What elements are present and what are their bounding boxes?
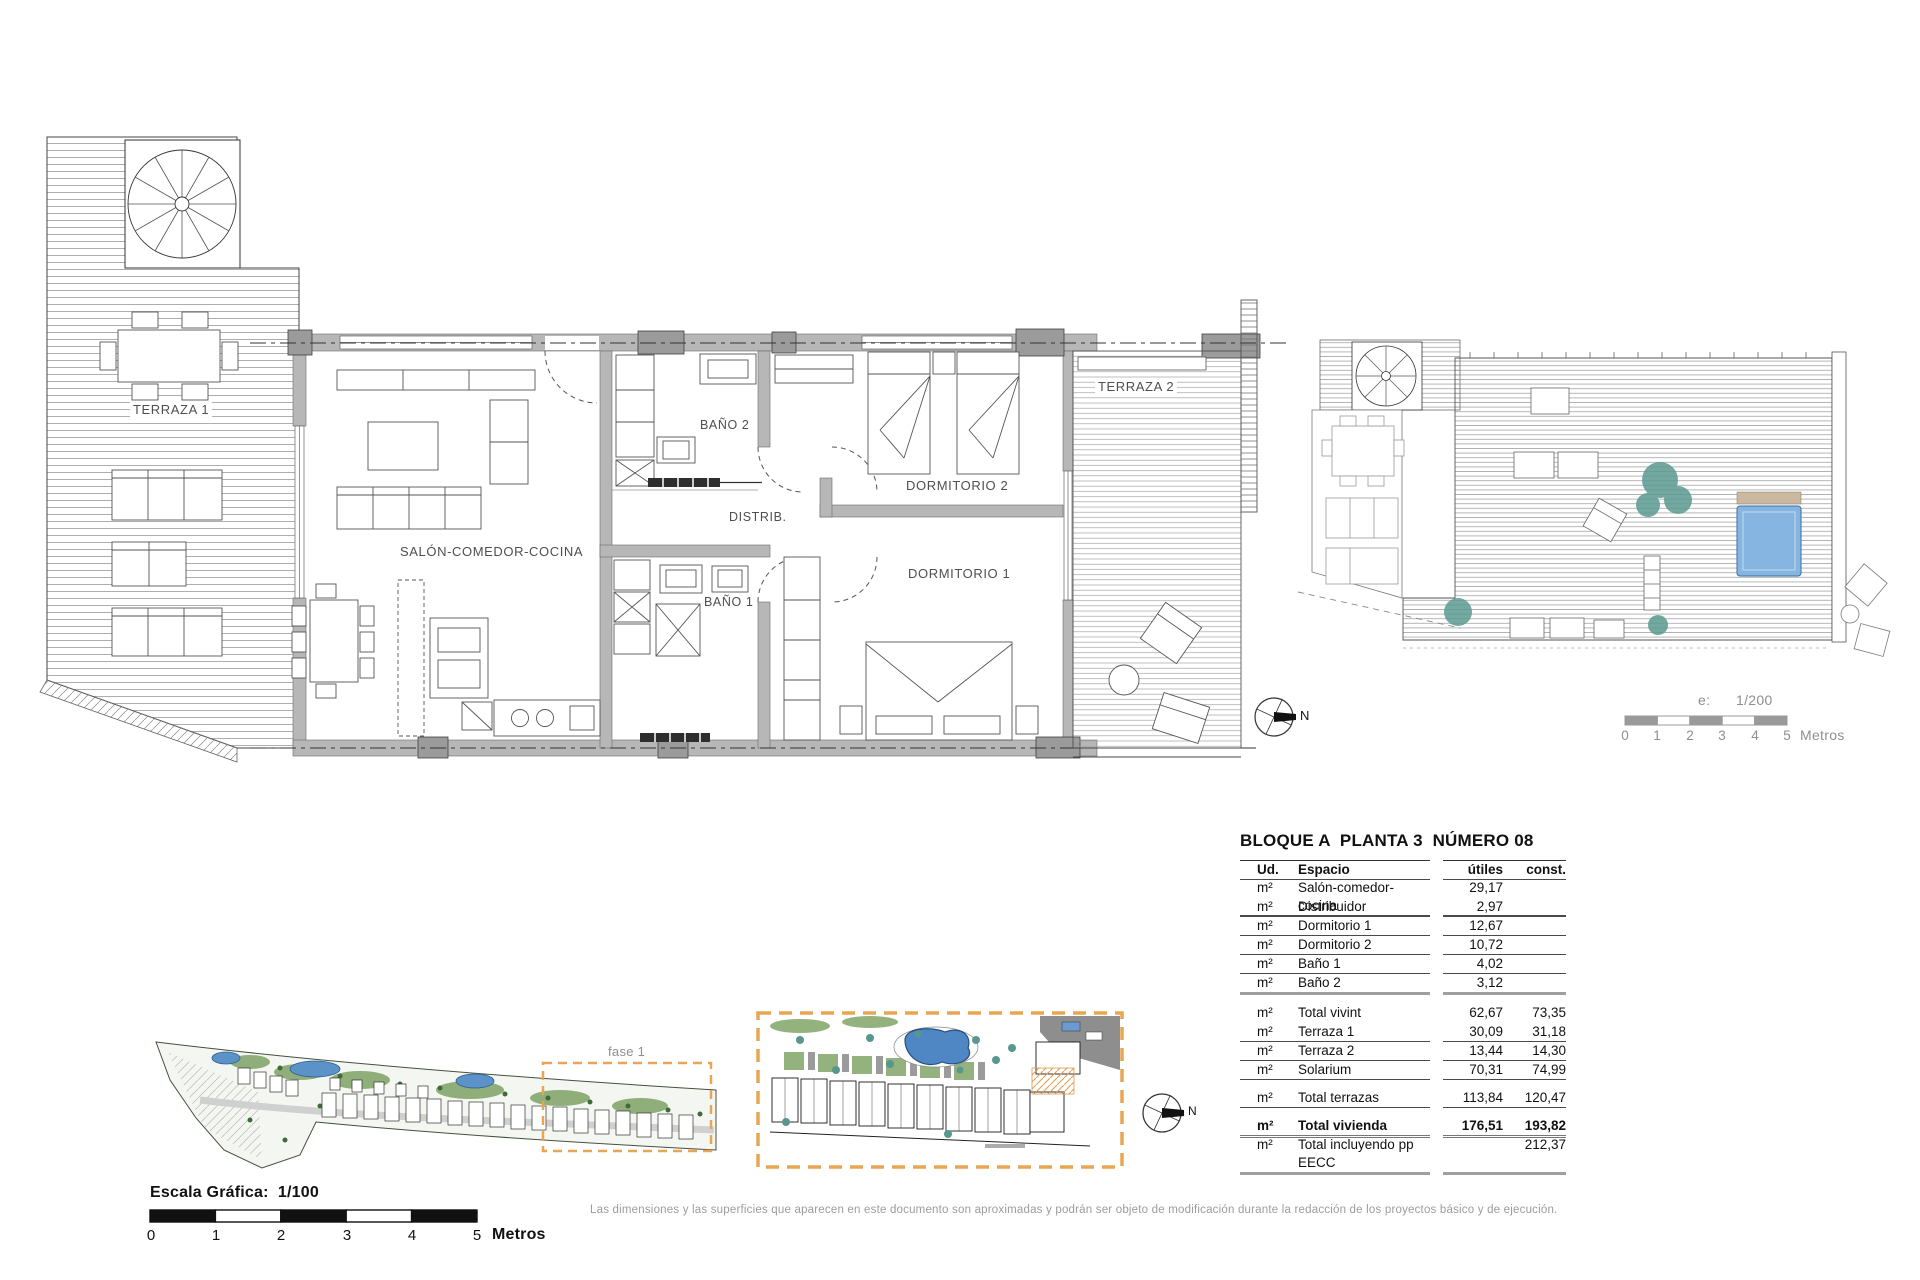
spiral-staircase-icon [125, 140, 240, 268]
table-row: m² Baño 1 4,02 [1240, 955, 1566, 974]
dormitorio1-label: DORMITORIO 1 [908, 566, 1010, 581]
solarium-spiral-staircase-icon [1352, 342, 1422, 410]
table-row: m² Total terrazas 113,84 120,47 [1240, 1089, 1566, 1108]
site-scale-title: Escala Gráfica: 1/100 [150, 1184, 319, 1202]
fase1-label: fase 1 [608, 1044, 645, 1059]
area-table-title: BLOQUE A PLANTA 3 NÚMERO 08 [1240, 831, 1566, 851]
table-header-row: Ud. Espacio útiles const. [1240, 860, 1566, 879]
solarium-outside-chairs [1841, 564, 1890, 657]
detail-phase-building [1032, 1068, 1074, 1094]
site-tick-4: 4 [399, 1227, 425, 1244]
col-unit: Ud. [1240, 860, 1298, 880]
site-tick-5: 5 [464, 1227, 490, 1244]
site-scale-bar [150, 1210, 477, 1222]
solarium-scale-ratio: 1/200 [1736, 692, 1773, 708]
table-row: m² Dormitorio 2 10,72 [1240, 936, 1566, 955]
disclaimer-text: Las dimensiones y las superficies que ap… [590, 1204, 1700, 1216]
solarium-tick-4: 4 [1742, 728, 1768, 743]
solarium-left-wing-furniture [1322, 416, 1404, 584]
main-floor-plan [40, 137, 1299, 762]
area-table: BLOQUE A PLANTA 3 NÚMERO 08 Ud. Espacio … [1240, 831, 1566, 1155]
site-tick-3: 3 [334, 1227, 360, 1244]
bano1-fixtures [614, 560, 748, 742]
solarium-units-label: Metros [1800, 727, 1845, 743]
north-compass-detail [1137, 1088, 1187, 1138]
north-label-detail: N [1188, 1104, 1197, 1118]
solarium-scale-bar [1625, 716, 1787, 725]
plan-sheet: TERRAZA 1 SALÓN-COMEDOR-COCINA BAÑO 2 DI… [0, 0, 1920, 1280]
architectural-drawing [0, 0, 1920, 1280]
table-row: m² Baño 2 3,12 [1240, 974, 1566, 993]
solarium-tick-0: 0 [1612, 728, 1638, 743]
col-space: Espacio [1298, 860, 1430, 880]
solarium-plan [1298, 340, 1890, 725]
terraza1-label: TERRAZA 1 [130, 402, 212, 417]
site-units-label: Metros [492, 1226, 546, 1244]
table-row: m² Total vivint 62,67 73,35 [1240, 1004, 1566, 1023]
table-row: m² Salón-comedor-cocina 29,17 [1240, 879, 1566, 898]
table-row: m² Terraza 1 30,09 31,18 [1240, 1023, 1566, 1042]
salon-label: SALÓN-COMEDOR-COCINA [400, 544, 583, 559]
site-tick-0: 0 [138, 1227, 164, 1244]
dormitorio2-furniture [775, 352, 1019, 474]
table-row: m² Distribuidor 2,97 [1240, 898, 1566, 917]
door-swing-arcs [545, 351, 877, 602]
north-compass-main [1249, 692, 1299, 742]
site-tick-2: 2 [268, 1227, 294, 1244]
solarium-tick-2: 2 [1677, 728, 1703, 743]
solarium-tick-5: 5 [1774, 728, 1800, 743]
terraza2-label: TERRAZA 2 [1095, 379, 1177, 394]
site-detail-plan [758, 1013, 1187, 1167]
north-label-main: N [1300, 708, 1310, 723]
site-tick-1: 1 [203, 1227, 229, 1244]
distribuidor-label: DISTRIB. [729, 510, 787, 524]
col-utiles: útiles [1443, 860, 1503, 880]
dormitorio2-label: DORMITORIO 2 [906, 478, 1008, 493]
bano2-label: BAÑO 2 [700, 418, 749, 432]
table-row: m² Terraza 2 13,44 14,30 [1240, 1042, 1566, 1061]
bano1-label: BAÑO 1 [704, 595, 753, 609]
table-row: m² Dormitorio 1 12,67 [1240, 917, 1566, 936]
solarium-tick-3: 3 [1709, 728, 1735, 743]
table-row: m² Solarium 70,31 74,99 [1240, 1061, 1566, 1080]
solarium-tick-1: 1 [1644, 728, 1670, 743]
solarium-scale-prefix: e: [1698, 692, 1710, 708]
terraza2-deck [1073, 300, 1257, 757]
dormitorio1-furniture [784, 557, 1038, 740]
table-row-total: m² Total vivienda 176,51 193,82 [1240, 1117, 1566, 1136]
col-const: const. [1503, 860, 1566, 880]
table-row: m² Total incluyendo pp EECC 212,37 [1240, 1136, 1566, 1155]
